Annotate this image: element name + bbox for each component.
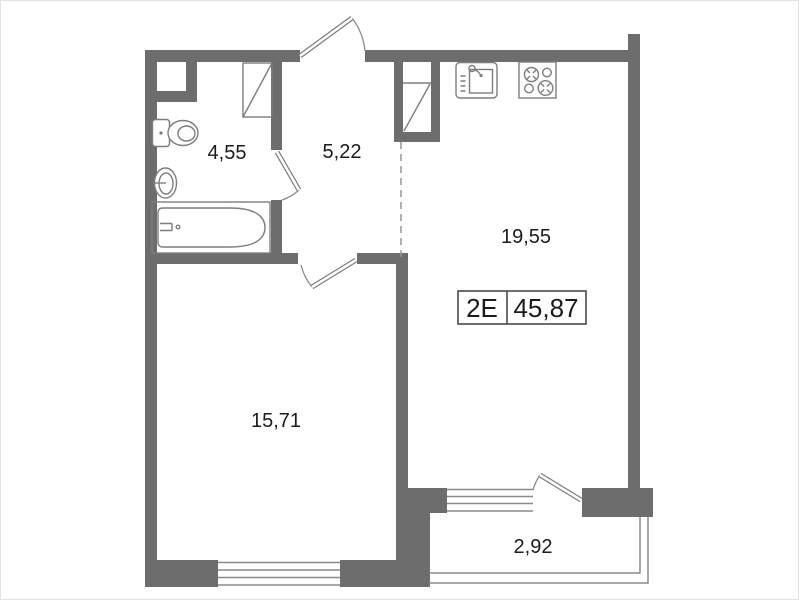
- room-door-leaf-inner: [312, 260, 356, 287]
- wall-shaft-right: [431, 62, 440, 142]
- window-room: [218, 563, 340, 586]
- kitchen-sink-drainboard: [461, 76, 466, 91]
- unit-total-area: 45,87: [513, 293, 578, 323]
- stove-burner-small-tr: [543, 68, 552, 77]
- shaft-diagonal: [404, 84, 430, 131]
- kitchen-sink-tap-spout: [475, 70, 481, 74]
- wall-stub-top-right: [628, 34, 640, 52]
- stove-burner-br-marks: [541, 84, 550, 93]
- vent-shaft-bathroom: [243, 63, 272, 117]
- wall-bottom-right-pier: [340, 560, 430, 587]
- vent-shaft-hall: [403, 83, 431, 131]
- floor-plan: 4,55 5,22 19,55 15,71 2,92 2E 45,87: [0, 0, 799, 600]
- room-labels: 4,55 5,22 19,55 15,71 2,92: [208, 141, 553, 558]
- stove-burner-large-br: [538, 81, 553, 96]
- stove-burner-small-bl: [525, 84, 534, 93]
- balcony-area-label: 2,92: [514, 536, 553, 558]
- wall-right: [628, 51, 640, 488]
- wall-kitchen-bottom-east: [582, 488, 653, 517]
- stove-icon: [519, 62, 556, 98]
- bathroom-door-arc: [282, 190, 299, 200]
- kitchen-area-label: 19,55: [501, 226, 551, 248]
- unit-info-box: 2E 45,87: [458, 291, 586, 324]
- kitchen-sink-basin: [470, 70, 493, 94]
- bathroom-area-label: 4,55: [208, 142, 247, 164]
- room-door: [301, 260, 356, 287]
- bathtub-drain: [176, 225, 180, 229]
- wall-bath-shaft-horizontal: [157, 91, 197, 102]
- bathtub-basin: [158, 208, 265, 247]
- entrance-door: [300, 18, 365, 56]
- wall-top-right: [365, 50, 640, 62]
- wall-top-left: [145, 50, 300, 62]
- bathtub-outer: [152, 202, 270, 253]
- kitchen-sink-icon: [456, 63, 497, 99]
- entrance-door-arc: [352, 18, 365, 51]
- stove-burner-tl-marks: [527, 70, 536, 79]
- wall-middle-left: [157, 253, 298, 264]
- kitchen-sink-tap-base: [469, 66, 475, 72]
- vent-diagonal: [243, 63, 272, 117]
- toilet-icon: [153, 120, 199, 147]
- window-kitchen: [447, 490, 533, 512]
- hallway-area-label: 5,22: [323, 141, 362, 163]
- balcony-door: [533, 475, 581, 500]
- room-door-arc: [301, 265, 312, 287]
- wall-shaft-left: [394, 62, 403, 142]
- bathroom-door-leaf-inner: [277, 152, 299, 190]
- floor-plan-drawing: 4,55 5,22 19,55 15,71 2,92 2E 45,87: [0, 0, 799, 600]
- bathroom-door: [277, 152, 299, 200]
- wall-bottom-left-pier: [145, 560, 218, 587]
- toilet-bowl: [168, 121, 198, 146]
- unit-type-label: 2E: [466, 293, 498, 323]
- bathtub-icon: [152, 202, 270, 253]
- toilet-button: [159, 131, 162, 134]
- washbasin-icon: [154, 168, 177, 198]
- wall-kitchen-bottom-west: [396, 488, 447, 513]
- balcony-door-leaf-inner: [540, 475, 581, 500]
- kitchen-sink-tap-end: [479, 74, 482, 77]
- bathtub-faucet: [160, 224, 172, 231]
- entrance-door-leaf-inner: [300, 18, 352, 56]
- bedroom-area-label: 15,71: [251, 410, 301, 432]
- wall-shaft-bottom: [394, 132, 440, 142]
- stove-burner-large-tl: [525, 68, 539, 82]
- wall-room-right: [396, 253, 408, 560]
